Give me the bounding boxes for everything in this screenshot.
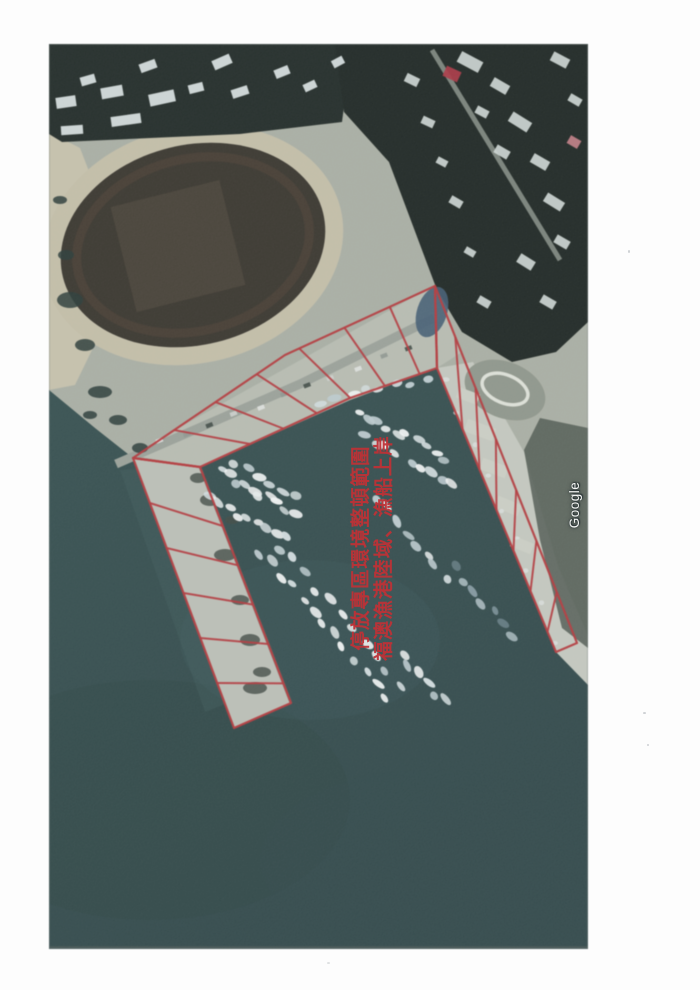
scan-speck [643, 712, 646, 714]
scan-speck [647, 744, 649, 746]
annotation-text: 停放專區環境整頓範圍 福澳漁港陸域、漁船上岸 [350, 423, 398, 673]
annotation-line-2: 停放專區環境整頓範圍 [350, 423, 373, 673]
google-watermark: Google [567, 465, 587, 545]
satellite-image [49, 44, 588, 949]
scan-speck [628, 250, 630, 253]
scan-speck [327, 962, 330, 964]
annotation-line-1: 福澳漁港陸域、漁船上岸 [373, 423, 396, 673]
scanned-document-page: 停放專區環境整頓範圍 福澳漁港陸域、漁船上岸 Google [0, 0, 700, 990]
